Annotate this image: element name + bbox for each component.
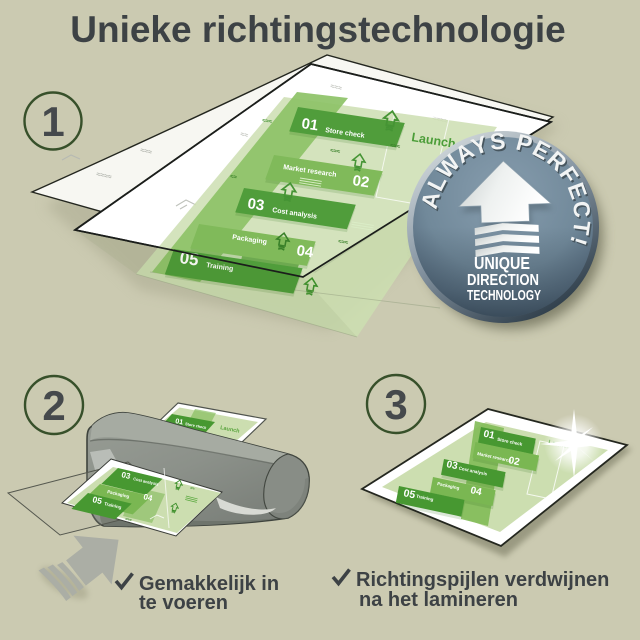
svg-text:Unieke richtingstechnologie: Unieke richtingstechnologie xyxy=(70,9,565,50)
svg-text:1: 1 xyxy=(41,98,64,145)
svg-text:UNIQUE: UNIQUE xyxy=(474,253,530,273)
svg-text:te voeren: te voeren xyxy=(139,592,228,614)
svg-text:2: 2 xyxy=(42,382,65,429)
svg-text:Richtingspijlen verdwijnen: Richtingspijlen verdwijnen xyxy=(356,569,609,591)
svg-text:TECHNOLOGY: TECHNOLOGY xyxy=(467,288,541,304)
svg-text:3: 3 xyxy=(384,381,407,428)
svg-text:DIRECTION: DIRECTION xyxy=(467,272,539,289)
svg-text:na het lamineren: na het lamineren xyxy=(359,589,518,611)
